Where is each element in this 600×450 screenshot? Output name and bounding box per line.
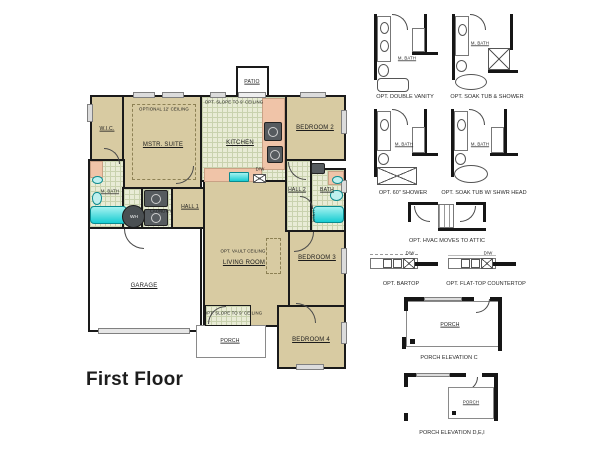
option-inner-label: M. BATH [395,143,413,147]
porch-elevation-dei: PORCH [398,369,504,431]
porch-elevation-c: PORCH [398,297,504,357]
option-inner-label: M. BATH [471,143,489,147]
option-inner-label: PORCH [463,401,479,405]
option-inner-label: PORCH [440,322,459,327]
master-ceiling-note: OPTIONAL 12' CEILING [139,108,189,112]
living-ent-center-dashed [266,238,281,274]
window [341,110,347,134]
window [341,322,347,344]
option-hvac-attic [408,202,486,236]
washer [144,190,168,207]
room-label-hall1: HALL 1 [181,204,199,209]
room-label-bedroom4: BEDROOM 4 [292,337,330,343]
water-heater-label: WH [130,214,138,219]
option-60-shower: M. BATH [374,109,438,189]
room-label-wic: W.I.C. [100,126,115,131]
option-caption-soak-tub-shower: OPT. SOAK TUB & SHOWER [450,94,523,100]
window [87,104,93,122]
room-garage [88,227,202,332]
option-inner-label: M. BATH [471,42,489,46]
bath2-tub [313,206,344,223]
option-inner-label: D/W [406,252,415,256]
option-inner-label: M. BATH [398,57,416,61]
option-caption-flat-top: OPT. FLAT-TOP COUNTERTOP [446,281,526,287]
refrigerator [264,122,282,141]
living-vault-note: OPT. VAULT CEILING [220,250,265,254]
room-label-kitchen: KITCHEN [226,140,254,146]
caption-porch-elevation-dei: PORCH ELEVATION D,E,I [419,430,484,436]
option-caption-bartop: OPT. BARTOP [383,281,419,287]
dishwasher-box [253,174,266,183]
window [296,364,324,370]
room-label-bedroom3: BEDROOM 3 [298,255,336,261]
water-heater: WH [122,205,145,228]
room-label-patio: PATIO [244,79,259,84]
room-label-garage: GARAGE [131,283,158,289]
window [162,92,184,98]
caption-porch-elevation-c: PORCH ELEVATION C [420,355,477,361]
option-caption-soak-tub-shwr-head: OPT. SOAK TUB W/ SHWR HEAD [441,190,526,196]
mbath-sink [92,176,103,184]
room-label-living: LIVING ROOM [223,260,265,266]
option-caption-60-shower: OPT. 60" SHOWER [379,190,427,196]
hall-cabinet [311,163,325,174]
option-bartop: D/W [370,253,438,281]
option-inner-label: D/W [484,252,493,256]
patio-door [238,92,266,98]
linen-label: LINEN [311,210,315,222]
room-label-master: MSTR. SUITE [143,142,183,148]
room-label-mbath: M. BATH [101,190,119,194]
option-soak-tub-shwr-head: M. BATH [451,109,518,189]
room-label-laundry: LAUNDRY [150,210,172,214]
page-title: First Floor [86,369,183,391]
option-soak-tub-shower: M. BATH [452,14,518,94]
window [300,92,326,98]
room-label-hall2: HALL 2 [288,187,306,192]
window [341,248,347,274]
kitchen-sink [229,172,249,182]
option-double-vanity: M. BATH [374,14,438,94]
floor-plan-sheet: WH W.I.C. OPTIONAL 12' CEILING MSTR. SUI… [0,0,600,450]
kitchen-slope-note: OPT. SLOPE TO 9' CEILING [205,101,264,105]
room-label-bedroom2: BEDROOM 2 [296,125,334,131]
range [267,146,283,163]
room-label-bath2: BATH [320,187,334,192]
window [210,92,226,98]
room-label-porch: PORCH [220,338,239,343]
option-flat-top-countertop: D/W [448,253,516,281]
garage-door [98,328,190,334]
porch-slope-note: OPT. SLOPE TO 9' CEILING [204,312,263,316]
option-caption-double-vanity: OPT. DOUBLE VANITY [376,94,434,100]
option-caption-hvac-attic: OPT. HVAC MOVES TO ATTIC [409,238,485,244]
dishwasher-label: D/W [256,168,265,172]
window [133,92,155,98]
bath2-sink [332,176,343,184]
